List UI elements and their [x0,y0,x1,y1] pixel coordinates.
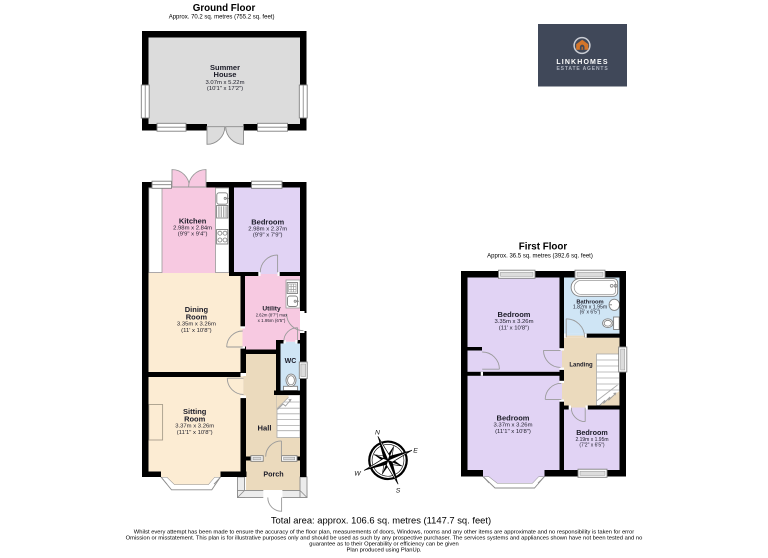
svg-text:3.37m x 3.26m: 3.37m x 3.26m [494,423,533,429]
svg-text:2.98m x 2.37m: 2.98m x 2.37m [248,227,287,233]
svg-text:(6' x 6'5"): (6' x 6'5") [580,310,601,316]
svg-text:3.07m x 5.22m: 3.07m x 5.22m [206,80,245,86]
svg-text:First Floor: First Floor [519,241,568,252]
svg-text:Kitchen: Kitchen [179,216,207,225]
svg-text:3.37m x 3.26m: 3.37m x 3.26m [175,424,214,430]
svg-text:Ground Floor: Ground Floor [193,3,256,14]
svg-text:Approx. 36.5 sq. metres (392.6: Approx. 36.5 sq. metres (392.6 sq. feet) [487,254,593,260]
svg-text:W: W [354,471,361,478]
svg-text:(7'2" x 6'5"): (7'2" x 6'5") [579,443,605,449]
svg-text:S: S [396,488,401,495]
svg-text:Plan produced using PlanUp.: Plan produced using PlanUp. [346,548,421,554]
svg-text:(9'9" x 7'9"): (9'9" x 7'9") [253,233,283,239]
svg-text:(11'1" x 10'8"): (11'1" x 10'8") [177,430,213,436]
svg-text:Bedroom: Bedroom [251,218,284,227]
svg-text:(11'1" x 10'8"): (11'1" x 10'8") [495,429,531,435]
svg-text:Bedroom: Bedroom [497,413,530,422]
svg-text:(10'1" x 17'2"): (10'1" x 17'2") [207,86,243,92]
svg-text:ESTATE AGENTS: ESTATE AGENTS [556,66,608,72]
svg-text:E: E [413,448,418,455]
svg-text:Hall: Hall [258,424,272,433]
svg-text:Landing: Landing [569,362,593,368]
svg-text:3.35m x 3.26m: 3.35m x 3.26m [177,322,216,328]
svg-text:(11' x 10'8"): (11' x 10'8") [499,325,529,331]
svg-text:N: N [375,430,380,437]
svg-text:2.62m (8'7") max: 2.62m (8'7") max [256,313,289,318]
svg-text:House: House [214,70,237,79]
svg-text:3.35m x 3.26m: 3.35m x 3.26m [495,319,534,325]
svg-text:(9'9" x 9'4"): (9'9" x 9'4") [178,232,208,238]
svg-text:(11' x 10'8"): (11' x 10'8") [181,328,211,334]
svg-text:Room: Room [186,312,208,321]
svg-text:Approx. 70.2 sq. metres (755.2: Approx. 70.2 sq. metres (755.2 sq. feet) [169,14,275,20]
svg-text:Bedroom: Bedroom [498,310,531,319]
svg-text:Total area: approx. 106.6 sq.: Total area: approx. 106.6 sq. metres (11… [271,515,491,526]
svg-text:Porch: Porch [263,470,283,479]
svg-text:x 1.95m (6'5"): x 1.95m (6'5") [258,318,286,323]
svg-text:LINKHOMES: LINKHOMES [556,59,608,66]
svg-text:Room: Room [184,415,206,424]
svg-text:2.98m x 2.84m: 2.98m x 2.84m [173,226,212,232]
svg-text:Bedroom: Bedroom [576,428,608,437]
svg-text:Utility: Utility [262,305,281,312]
svg-text:WC: WC [285,358,297,365]
